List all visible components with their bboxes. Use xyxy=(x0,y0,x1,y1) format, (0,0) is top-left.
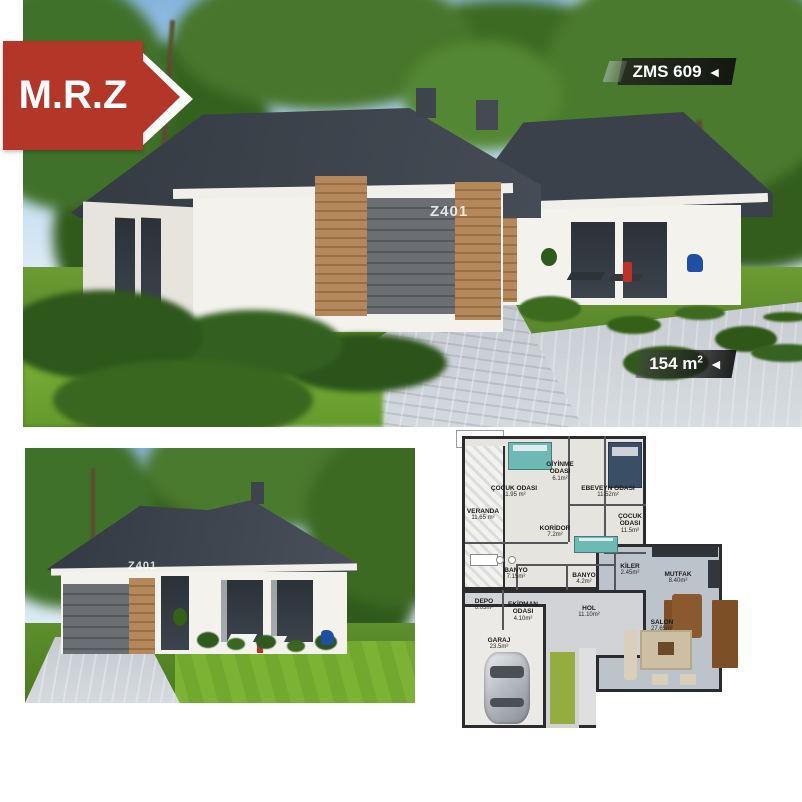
chimney xyxy=(251,482,264,504)
room-label-cocuk-2: ÇOCUK ODASI 11.5m² xyxy=(613,513,647,535)
car-windshield xyxy=(490,666,524,678)
red-mower xyxy=(623,262,632,282)
room-label-koridor: KORİDOR 7.2m² xyxy=(523,525,587,539)
right-wing-window xyxy=(571,222,615,298)
lounger xyxy=(259,636,287,644)
armchair xyxy=(652,674,668,685)
room-label-hol: HOL 11.10m² xyxy=(557,605,621,619)
round-bushes xyxy=(519,296,581,322)
right-wing-window xyxy=(623,222,667,298)
room-label-banyo-1: BANYO 7.15m² xyxy=(484,567,548,581)
car-rear-window xyxy=(490,698,524,707)
lounger xyxy=(227,634,257,642)
wall-line xyxy=(465,542,568,544)
room-label-ekipman: EKİPMAN ODASI 4.10m² xyxy=(506,601,540,623)
plan-garden-strip xyxy=(546,648,579,728)
area-number: 154 m xyxy=(649,354,697,373)
left-arrow-icon: ◄ xyxy=(708,64,722,80)
model-tag: ZMS 609 ◄ xyxy=(620,58,734,85)
blue-stroller xyxy=(321,630,334,645)
car-top-view xyxy=(484,652,530,724)
secondary-house-photo: Z401 xyxy=(25,448,415,703)
room-label-cocuk-1: ÇOCUK ODASI 11.95 m² xyxy=(482,485,546,499)
sink xyxy=(496,556,504,564)
watermark-z401-top: Z401 xyxy=(430,203,468,220)
room-label-ebeveyn: EBEVEYN ODASI 11.52m² xyxy=(576,485,640,499)
watermark-z401-bottom: Z401 xyxy=(128,560,157,572)
blue-stroller xyxy=(687,254,703,272)
badge-plate: M.R.Z xyxy=(3,41,143,150)
deck-chair xyxy=(567,272,606,280)
bush-row xyxy=(197,632,219,648)
window xyxy=(221,580,263,642)
sink xyxy=(508,556,516,564)
window xyxy=(271,580,313,642)
model-code: ZMS 609 xyxy=(633,62,702,82)
room-label-giyinme: GİYİNME ODASI 6.1m² xyxy=(543,461,577,483)
room-label-salon: SALON 27.65m² xyxy=(630,619,694,633)
wood-cladding-left xyxy=(315,176,367,316)
brochure-page: Z401 M.R.Z ZMS 609 ◄ 154 m2 ◄ xyxy=(0,0,802,802)
red-item xyxy=(257,642,263,653)
bathtub xyxy=(470,554,498,566)
room-label-mutfak: MUTFAK 8.40m² xyxy=(646,571,710,585)
left-arrow-icon: ◄ xyxy=(709,356,723,372)
coffee-table xyxy=(658,642,674,655)
wall-line xyxy=(568,504,646,506)
chimney xyxy=(476,100,498,130)
kitchen-counter xyxy=(652,546,718,557)
area-superscript: 2 xyxy=(697,354,703,365)
area-tag: 154 m2 ◄ xyxy=(638,350,734,378)
floor-plan: VERANDA 11.65 m² ÇOCUK ODASI 11.95 m² Gİ… xyxy=(456,434,728,732)
room-label-garaj: GARAJ 23.5m² xyxy=(467,637,531,651)
right-wing-wall xyxy=(491,205,741,305)
brand-name: M.R.Z xyxy=(19,73,128,118)
small-tree xyxy=(541,248,557,266)
chimney xyxy=(416,88,436,118)
armchair xyxy=(680,674,696,685)
area-value: 154 m2 xyxy=(649,354,703,374)
bed-master xyxy=(608,442,642,488)
wood-cladding xyxy=(129,578,155,654)
small-tree xyxy=(173,608,187,626)
garage-door xyxy=(63,584,129,654)
room-label-veranda: VERANDA 11.65 m² xyxy=(463,508,503,522)
sofa xyxy=(624,630,637,680)
